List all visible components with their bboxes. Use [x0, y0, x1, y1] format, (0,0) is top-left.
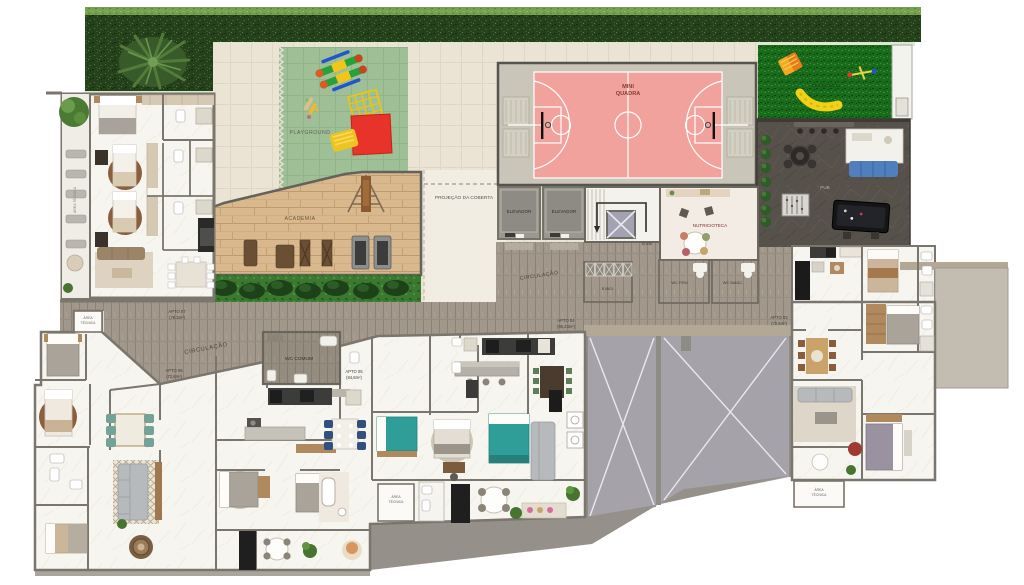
svg-text:MINI: MINI: [622, 84, 634, 90]
svg-text:ÁREA: ÁREA: [83, 316, 93, 320]
svg-text:WC MASC.: WC MASC.: [723, 280, 743, 285]
svg-text:ÁREA TÉCNICA: ÁREA TÉCNICA: [72, 186, 77, 213]
svg-text:APTO 05: APTO 05: [345, 369, 363, 374]
svg-text:(72,6m²): (72,6m²): [771, 321, 787, 326]
svg-text:PROJEÇÃO DA COBERTA: PROJEÇÃO DA COBERTA: [435, 194, 494, 201]
svg-text:(78,3m²): (78,3m²): [169, 315, 185, 320]
svg-text:S.BICI.: S.BICI.: [602, 286, 615, 291]
svg-text:WC COMUM: WC COMUM: [285, 356, 313, 362]
svg-text:SOBE: SOBE: [641, 241, 652, 246]
svg-text:WC FEM.: WC FEM.: [671, 280, 688, 285]
svg-text:(94,6m²): (94,6m²): [346, 375, 362, 380]
svg-text:NUTRICIOTECA: NUTRICIOTECA: [693, 223, 728, 228]
svg-text:QUADRA: QUADRA: [616, 91, 641, 97]
svg-text:(95,23m²): (95,23m²): [557, 324, 576, 329]
svg-text:ELEVADOR: ELEVADOR: [552, 209, 577, 214]
svg-text:APTO 07: APTO 07: [168, 309, 186, 314]
svg-text:ÁREA: ÁREA: [814, 488, 824, 492]
svg-text:PUB: PUB: [820, 185, 829, 190]
svg-text:(72,6m²): (72,6m²): [166, 374, 182, 379]
svg-text:TÉCNICA: TÉCNICA: [81, 320, 97, 325]
svg-text:PLAYGROUND: PLAYGROUND: [290, 130, 331, 136]
svg-text:BRINQUEDOS: BRINQUEDOS: [812, 83, 840, 88]
svg-text:TÉCNICA: TÉCNICA: [389, 499, 405, 504]
svg-text:ACADEMIA: ACADEMIA: [284, 216, 315, 222]
svg-text:ÁREA: ÁREA: [391, 495, 401, 499]
svg-text:TÉCNICA: TÉCNICA: [812, 492, 828, 497]
svg-text:APTO 04: APTO 04: [557, 318, 575, 323]
svg-text:APTO 06: APTO 06: [165, 368, 183, 373]
svg-text:ELEVADOR: ELEVADOR: [507, 209, 532, 214]
svg-text:APTO 03: APTO 03: [770, 315, 788, 320]
